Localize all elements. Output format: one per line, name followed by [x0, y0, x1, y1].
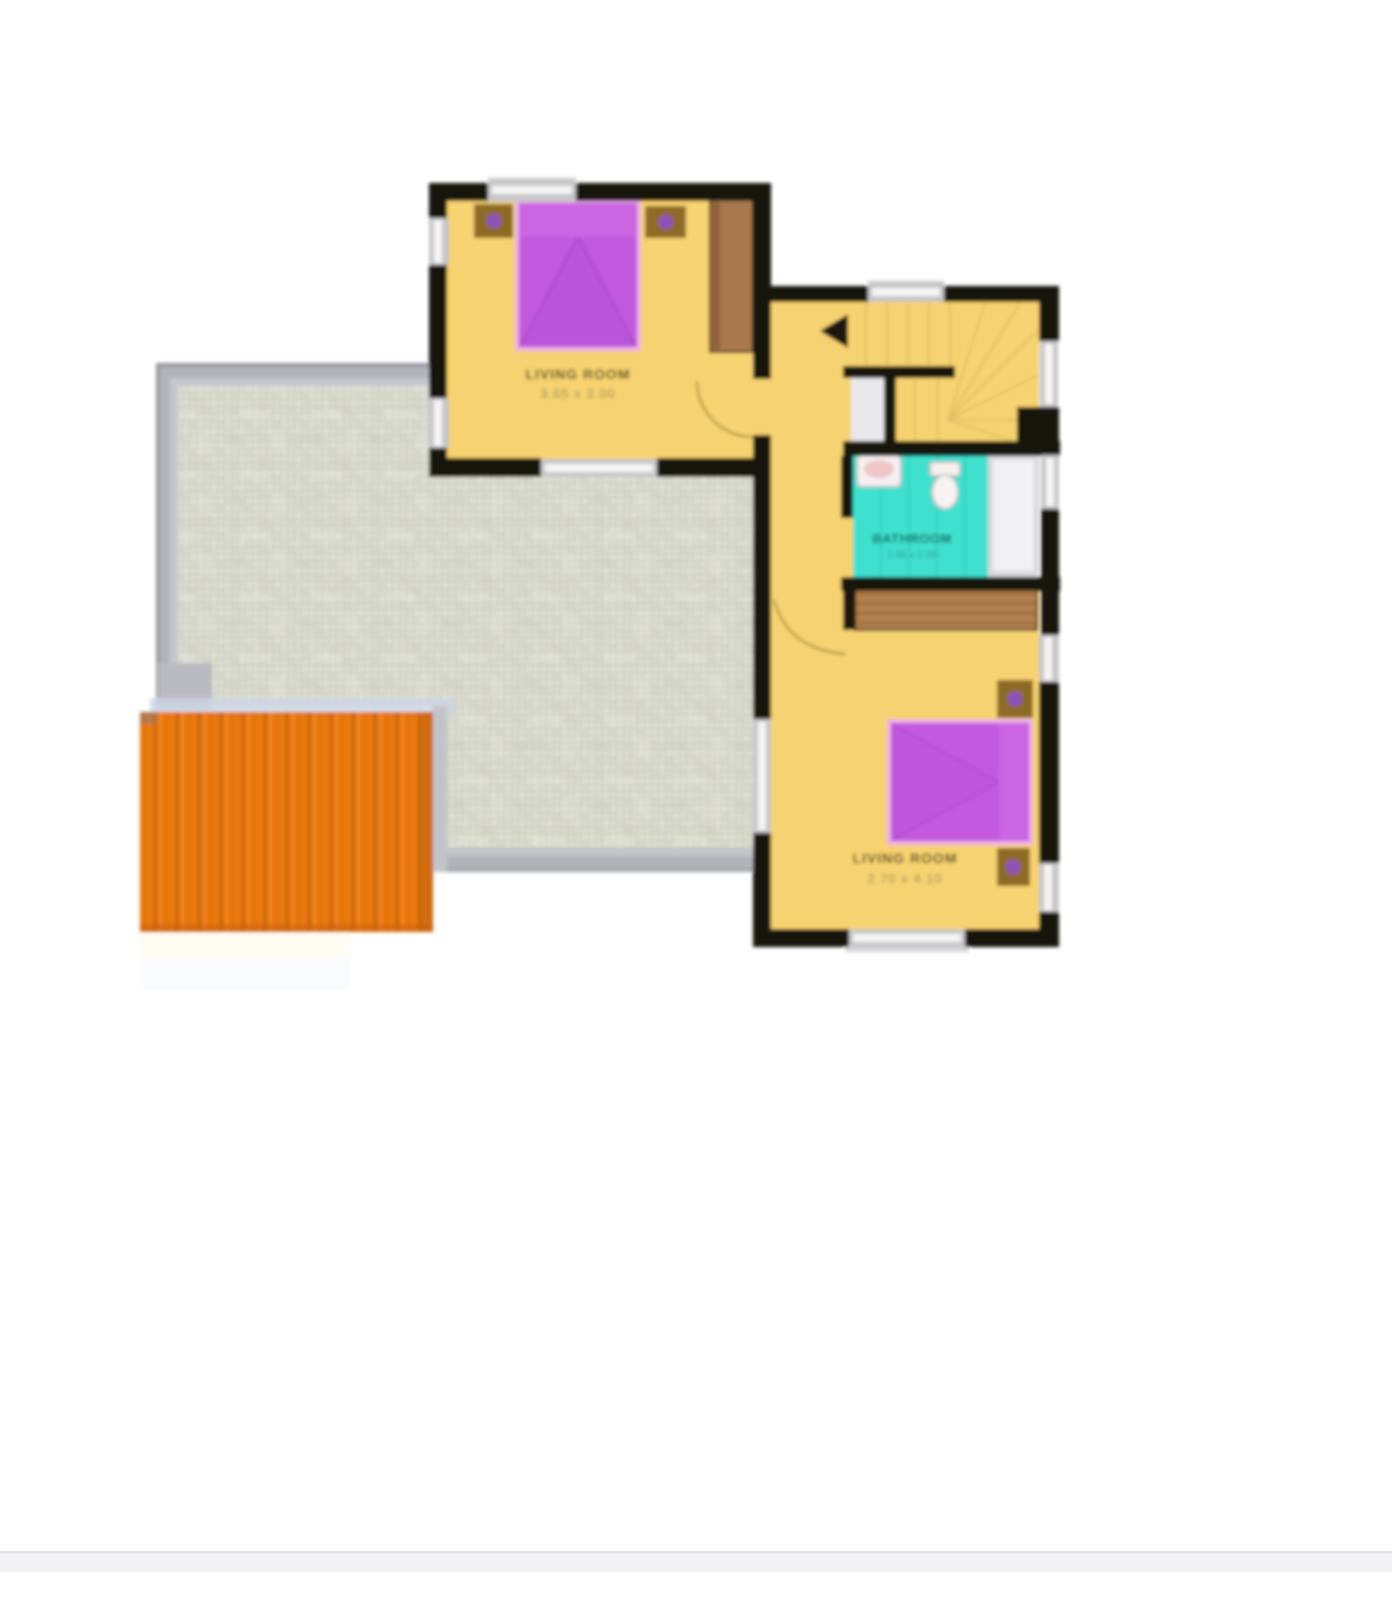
svg-text:2.70 x 4.10: 2.70 x 4.10	[867, 871, 942, 886]
svg-text:1.85 x 2.05: 1.85 x 2.05	[887, 550, 937, 561]
svg-text:3.65 x 3.00: 3.65 x 3.00	[540, 386, 615, 401]
svg-text:BATHROOM: BATHROOM	[872, 531, 952, 546]
svg-text:LIVING ROOM: LIVING ROOM	[525, 366, 630, 382]
svg-text:LIVING ROOM: LIVING ROOM	[852, 850, 957, 866]
